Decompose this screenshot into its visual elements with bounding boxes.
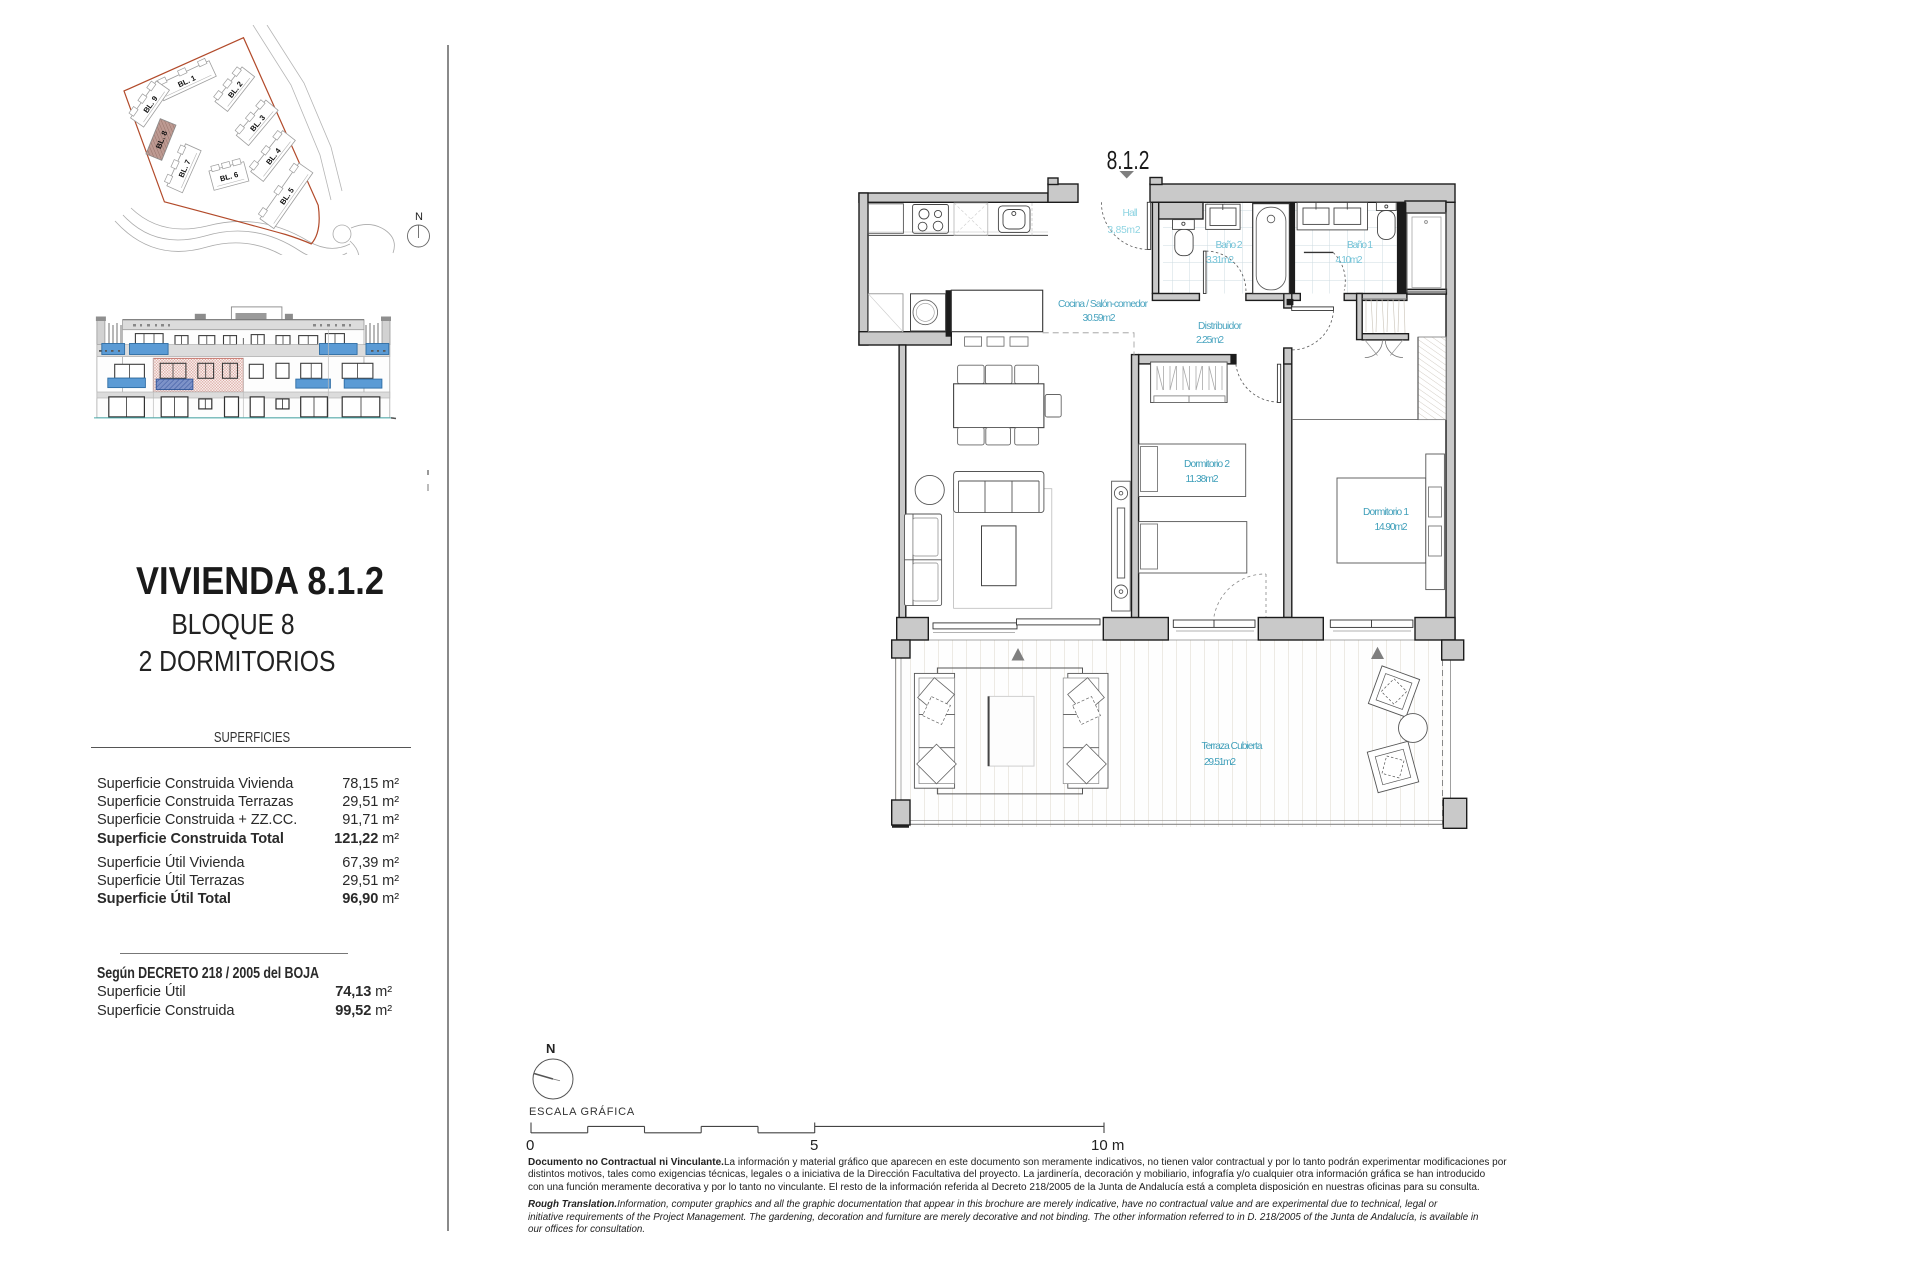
svg-text:Baño 2: Baño 2 xyxy=(1216,240,1243,251)
svg-text:3.31m2: 3.31m2 xyxy=(1206,255,1234,266)
svg-text:Distribuidor: Distribuidor xyxy=(1198,321,1243,332)
svg-text:2.25m2: 2.25m2 xyxy=(1196,335,1224,346)
svg-text:29.51m2: 29.51m2 xyxy=(1204,757,1236,768)
svg-text:Dormitorio 1: Dormitorio 1 xyxy=(1363,507,1409,518)
svg-text:Baño 1: Baño 1 xyxy=(1347,240,1373,251)
svg-text:14.90m2: 14.90m2 xyxy=(1375,522,1408,533)
svg-text:0: 0 xyxy=(526,1137,534,1154)
svg-text:ESCALA GRÁFICA: ESCALA GRÁFICA xyxy=(529,1105,635,1118)
svg-text:10 m: 10 m xyxy=(1091,1137,1124,1154)
svg-text:8.1.2: 8.1.2 xyxy=(1107,145,1150,175)
svg-text:N: N xyxy=(415,211,423,223)
svg-text:Terraza Cubierta: Terraza Cubierta xyxy=(1202,741,1263,752)
svg-text:5: 5 xyxy=(810,1137,818,1154)
svg-text:30.59m2: 30.59m2 xyxy=(1083,313,1116,324)
svg-text:Hall: Hall xyxy=(1123,208,1138,219)
svg-text:11.38m2: 11.38m2 xyxy=(1186,474,1219,485)
svg-text:N: N xyxy=(546,1041,555,1056)
svg-text:Cocina / Salón-comedor: Cocina / Salón-comedor xyxy=(1058,299,1149,310)
svg-text:3,85m2: 3,85m2 xyxy=(1108,225,1141,236)
svg-text:Dormitorio 2: Dormitorio 2 xyxy=(1184,459,1230,470)
svg-text:4.10m2: 4.10m2 xyxy=(1336,255,1363,266)
